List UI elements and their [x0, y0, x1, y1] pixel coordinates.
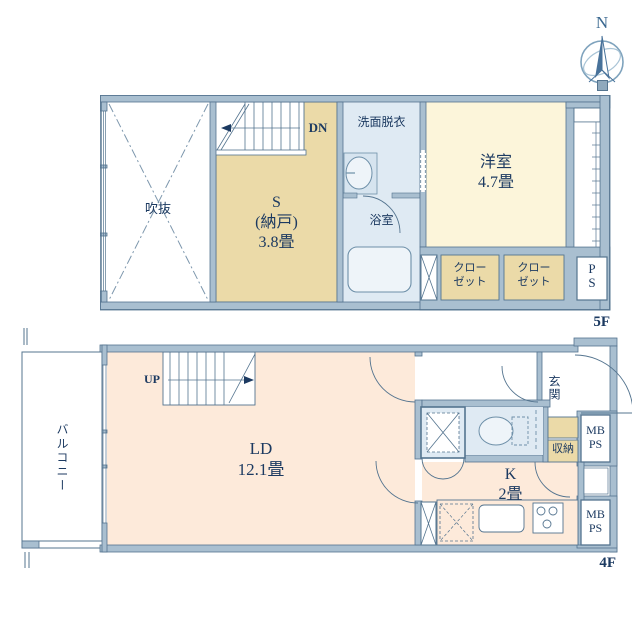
- closet-left-label: クローゼット: [451, 262, 489, 290]
- washroom-label: 洗面脱衣: [341, 115, 422, 130]
- storage-room-label: S(納戸)3.8畳: [216, 193, 337, 253]
- entrance-label: 玄関: [546, 368, 561, 408]
- kitchen-label: K2畳: [473, 465, 548, 505]
- pillar-marker: [597, 80, 608, 91]
- floor-5f-plan: 吹抜 DN S(納戸)3.8畳 洗面脱衣 浴室 洋室4.7畳 クローゼット クロ…: [100, 95, 612, 335]
- kitchen-name: K: [505, 466, 517, 483]
- kitchen-size: 2畳: [498, 486, 522, 503]
- closet-right-label: クローゼット: [515, 262, 553, 290]
- meter-box-upper-label: MB PS: [581, 423, 610, 452]
- void-label: 吹抜: [126, 201, 190, 217]
- floorplan-page: N: [0, 0, 640, 640]
- stairs-dn-label: DN: [298, 120, 338, 136]
- storage-label: 収納: [548, 443, 578, 457]
- storage-room-size: 3.8畳: [258, 234, 294, 251]
- living-dining-name: LD: [250, 439, 273, 458]
- meter-box-lower-label: MB PS: [581, 507, 610, 536]
- floor-4f-label: 4F: [576, 554, 616, 573]
- storage-room-name: (納戸): [255, 214, 298, 231]
- balcony-label: バルコニー: [54, 423, 69, 493]
- western-room-name: 洋室: [480, 154, 512, 171]
- pipe-space-label: PS: [585, 262, 599, 289]
- living-dining-size: 12.1畳: [238, 460, 285, 479]
- floor-4f-plan: バルコニー UP LD12.1畳 玄関 収納 MB PS K2畳 MB PS 4…: [18, 328, 632, 578]
- western-room-size: 4.7畳: [478, 174, 514, 191]
- western-room-label: 洋室4.7畳: [426, 153, 566, 193]
- living-dining-label: LD12.1畳: [191, 438, 331, 481]
- bath-label: 浴室: [343, 213, 420, 228]
- compass-north-label: N: [572, 12, 632, 33]
- stairs-up-label: UP: [140, 372, 164, 387]
- storage-room-code: S: [272, 194, 281, 211]
